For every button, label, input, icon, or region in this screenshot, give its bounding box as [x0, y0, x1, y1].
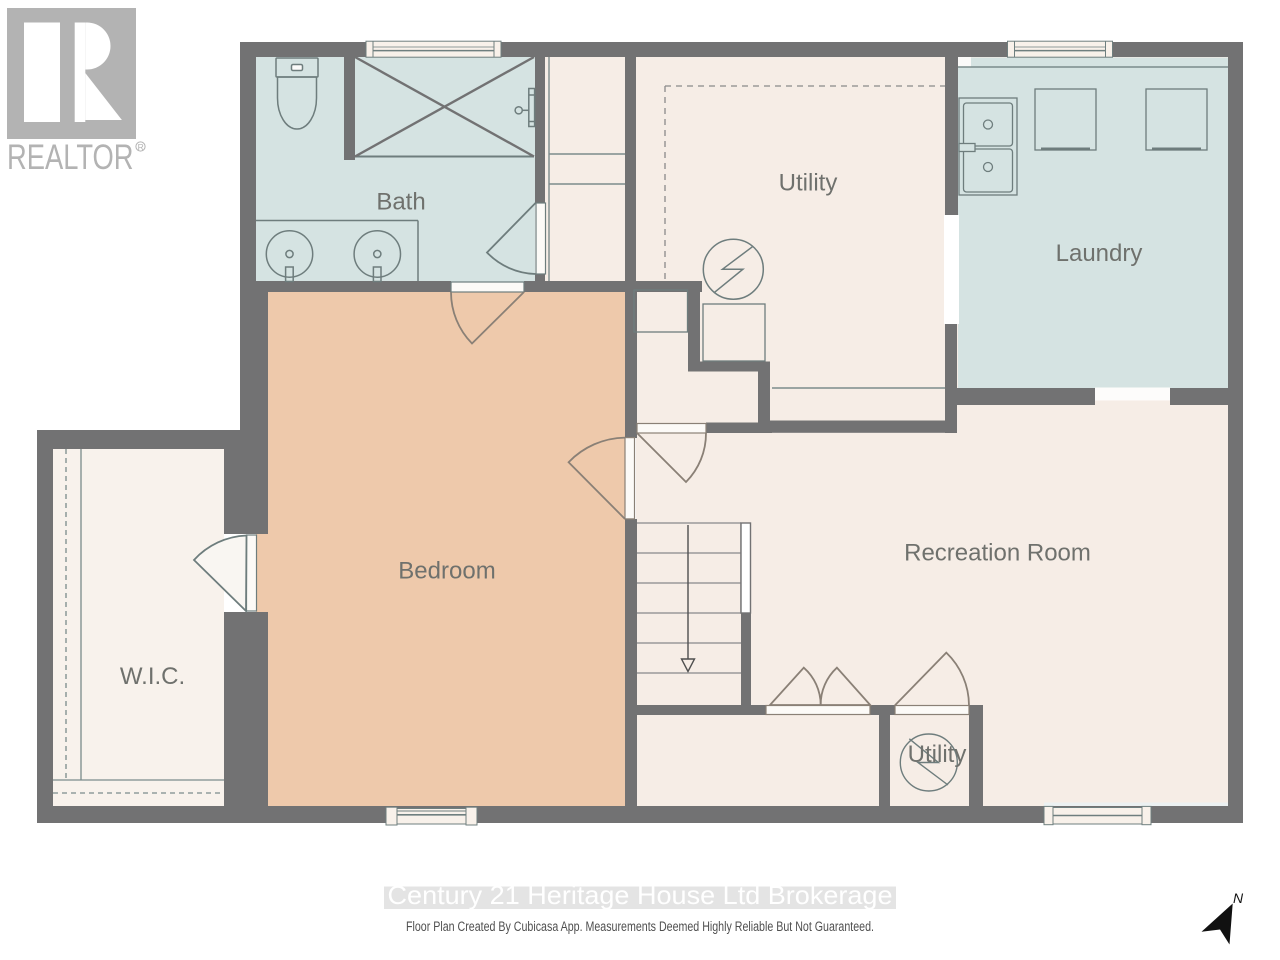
svg-text:Bath: Bath: [376, 189, 425, 216]
svg-text:Floor Plan Created By Cubicasa: Floor Plan Created By Cubicasa App. Meas…: [406, 919, 874, 934]
svg-text:W.I.C.: W.I.C.: [120, 663, 185, 690]
svg-text:REALTOR: REALTOR: [7, 137, 134, 177]
svg-text:Utility: Utility: [908, 741, 967, 768]
svg-text:R: R: [138, 142, 144, 152]
svg-text:Bedroom: Bedroom: [398, 558, 495, 585]
svg-text:Utility: Utility: [779, 170, 838, 197]
svg-text:N: N: [1233, 890, 1244, 906]
svg-text:Century 21 Heritage House Ltd: Century 21 Heritage House Ltd Brokerage: [388, 880, 893, 910]
svg-text:Recreation Room: Recreation Room: [904, 540, 1091, 567]
svg-text:Laundry: Laundry: [1056, 240, 1143, 267]
